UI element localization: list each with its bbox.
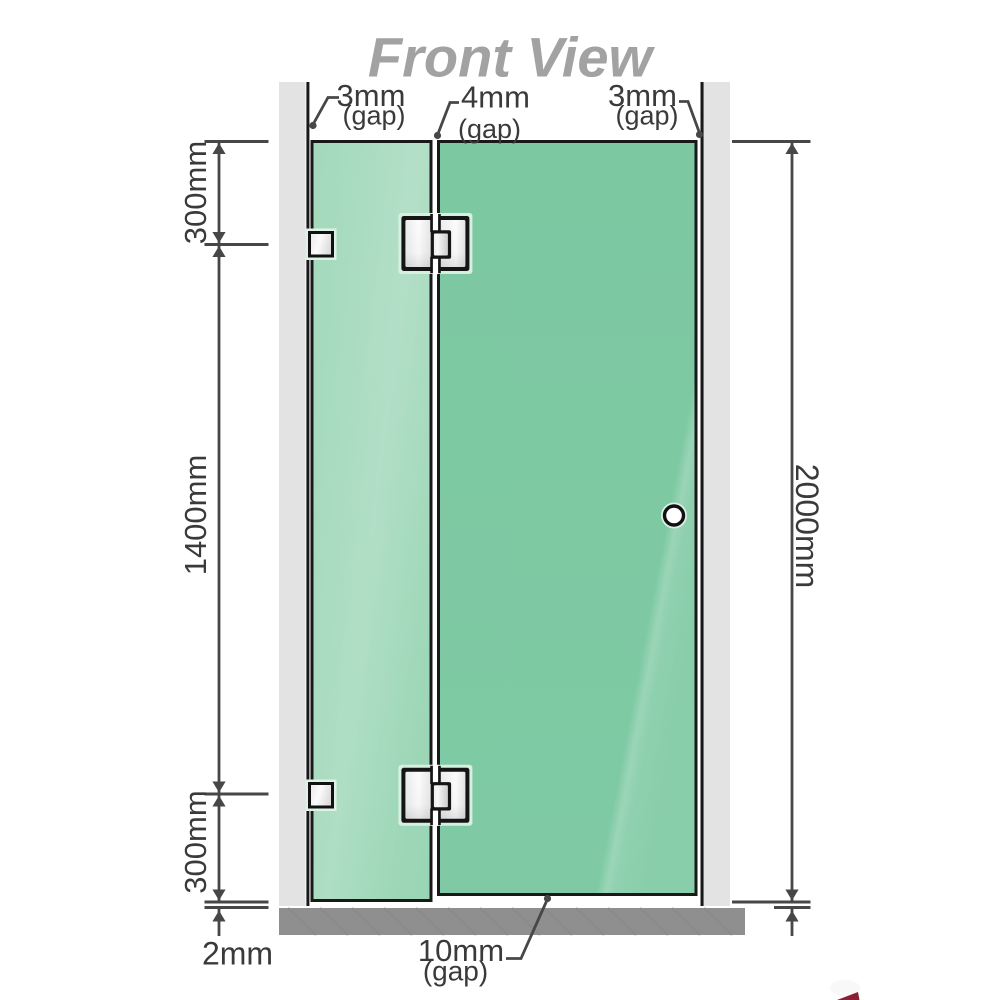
svg-text:300mm: 300mm xyxy=(178,141,213,244)
svg-text:300mm: 300mm xyxy=(178,790,213,893)
svg-text:(gap): (gap) xyxy=(342,101,405,131)
svg-text:2mm: 2mm xyxy=(202,936,273,972)
svg-text:2000mm: 2000mm xyxy=(789,464,825,589)
svg-text:(gap): (gap) xyxy=(423,956,488,987)
svg-text:1400mm: 1400mm xyxy=(178,455,213,576)
svg-text:4mm: 4mm xyxy=(461,80,530,115)
svg-text:(gap): (gap) xyxy=(615,101,678,131)
svg-text:(gap): (gap) xyxy=(458,114,521,144)
